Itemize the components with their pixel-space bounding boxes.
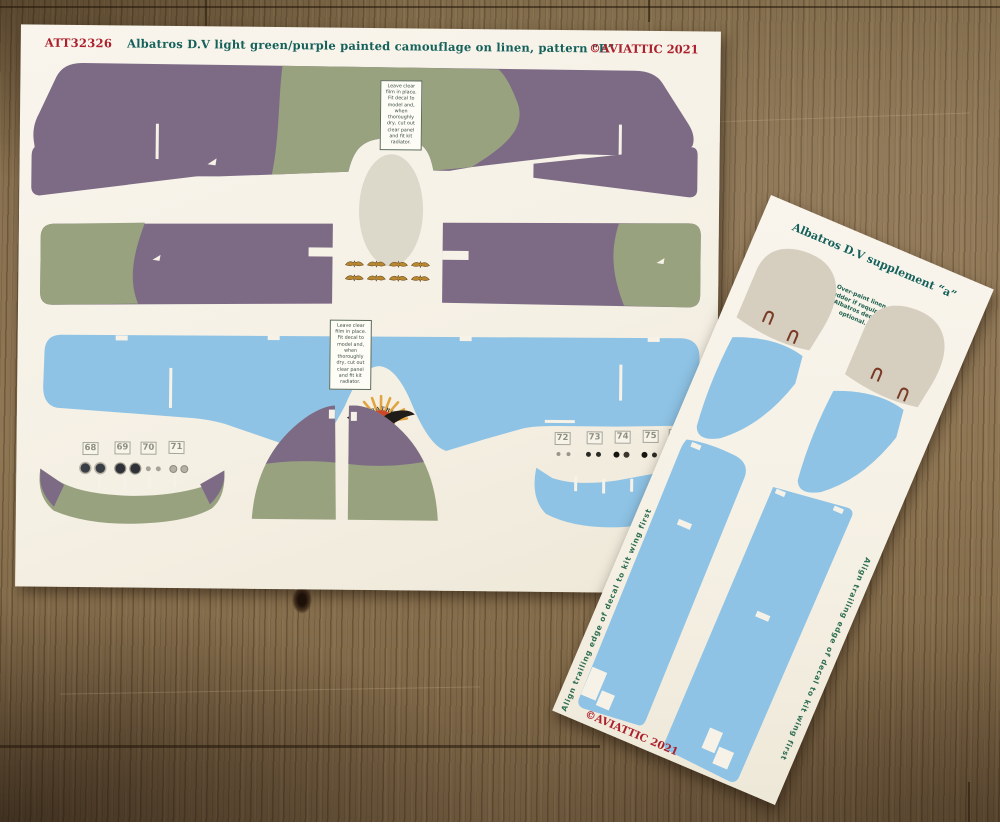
fin-decal-left <box>690 325 807 462</box>
decal-number: 72 <box>555 432 571 445</box>
main-decal-artwork: ALBATROS <box>15 24 721 593</box>
strut-slit <box>545 420 575 423</box>
decal-number: 69 <box>114 441 130 454</box>
wood-seam <box>205 0 207 26</box>
mid-wing-decal-left <box>40 221 335 308</box>
instruction-box-lower: Leave clear film in place. Fit decal to … <box>329 320 372 391</box>
wood-seam <box>0 745 600 748</box>
decal-number: 71 <box>168 441 184 454</box>
decal-number: 68 <box>82 442 98 455</box>
mid-wing-decal-right <box>442 221 701 308</box>
strut-slit <box>619 365 622 401</box>
decal-number: 73 <box>587 431 603 444</box>
hull-decal-left <box>39 469 225 525</box>
photo-of-decal-sheets: { "main_sheet": { "product_code": "ATT32… <box>0 0 1000 822</box>
wood-seam <box>648 0 650 22</box>
decal-number: 75 <box>643 430 659 443</box>
wood-seam <box>0 6 1000 8</box>
decal-number: 70 <box>140 442 156 455</box>
strut-slit <box>169 368 172 408</box>
fastener-dots <box>556 451 657 458</box>
linen-rudder-left <box>734 237 849 356</box>
wood-seam <box>968 782 970 822</box>
decal-number: 74 <box>615 431 631 444</box>
instrument-gauges <box>80 462 188 474</box>
wood-knot <box>292 586 312 614</box>
instruction-box-upper: Leave clear film in place. Fit decal to … <box>380 80 423 151</box>
radiator-oval-panel <box>358 154 423 267</box>
main-decal-sheet: ATT32326 Albatros D.V light green/purple… <box>15 24 721 593</box>
